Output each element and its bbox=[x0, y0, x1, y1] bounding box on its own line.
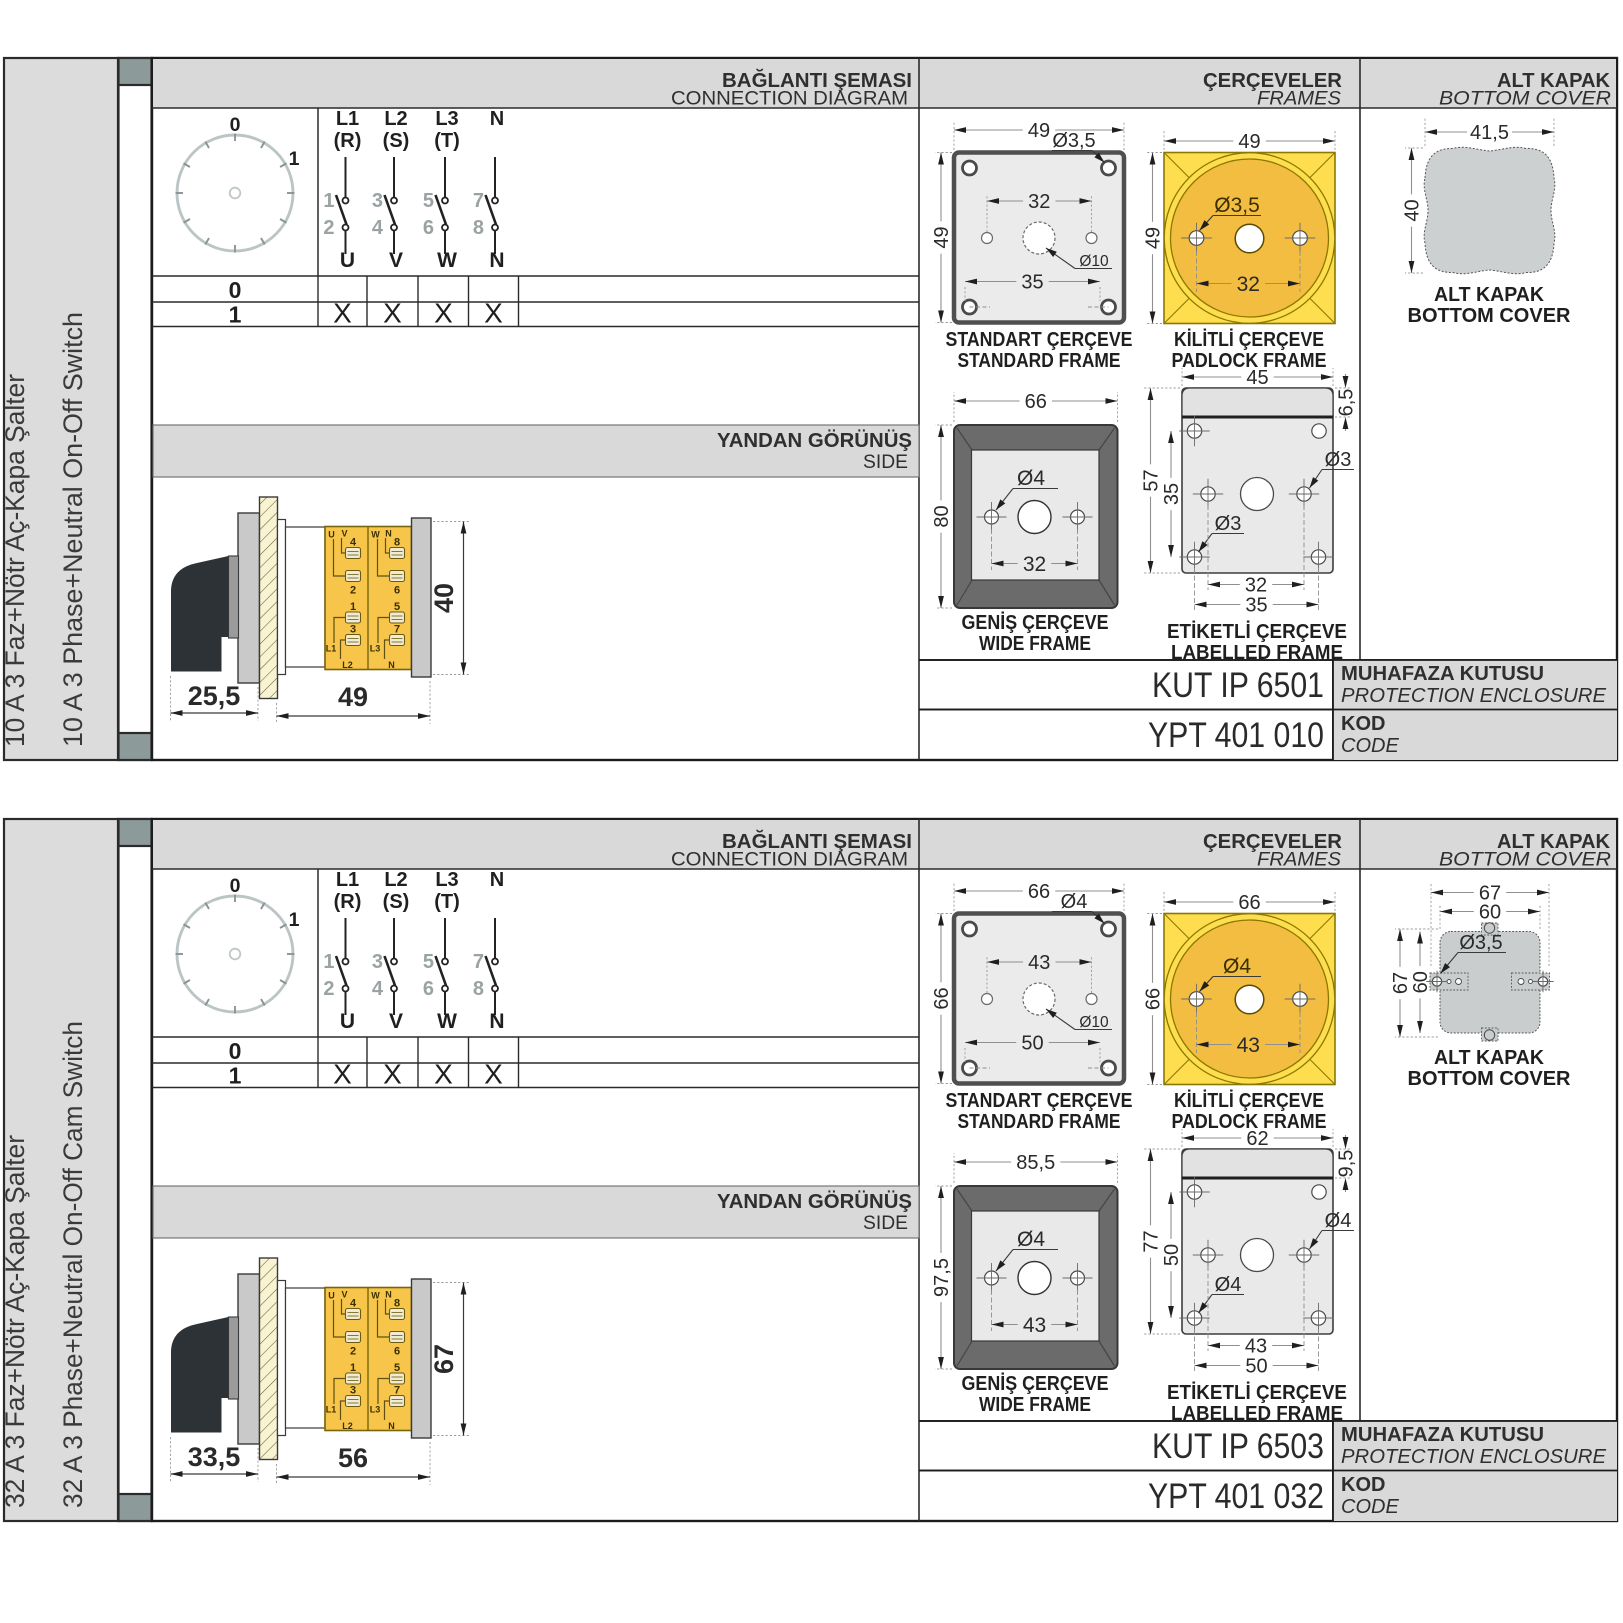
svg-text:7: 7 bbox=[394, 1385, 400, 1397]
svg-text:32: 32 bbox=[1028, 191, 1050, 213]
svg-text:9,5: 9,5 bbox=[1336, 1150, 1358, 1178]
svg-text:60: 60 bbox=[1479, 902, 1501, 924]
svg-text:L3: L3 bbox=[435, 108, 458, 130]
svg-text:KİLİTLİ ÇERÇEVE: KİLİTLİ ÇERÇEVE bbox=[1174, 1089, 1324, 1112]
svg-text:L2: L2 bbox=[384, 108, 407, 130]
svg-text:10 A 3 Phase+Neutral On-Off Sw: 10 A 3 Phase+Neutral On-Off Switch bbox=[58, 312, 88, 747]
svg-text:35: 35 bbox=[1161, 483, 1183, 505]
svg-text:Ø10: Ø10 bbox=[1079, 1014, 1109, 1031]
svg-text:Ø4: Ø4 bbox=[1061, 891, 1088, 913]
svg-text:W: W bbox=[437, 249, 457, 272]
svg-text:32 A 3 Faz+Nötr Aç-Kapa Şalter: 32 A 3 Faz+Nötr Aç-Kapa Şalter bbox=[0, 1135, 30, 1508]
svg-text:KUT IP 6503: KUT IP 6503 bbox=[1152, 1427, 1324, 1466]
svg-text:4: 4 bbox=[372, 217, 384, 239]
svg-text:33,5: 33,5 bbox=[188, 1442, 241, 1472]
svg-text:STANDART ÇERÇEVE: STANDART ÇERÇEVE bbox=[946, 329, 1133, 351]
svg-text:PROTECTION ENCLOSURE: PROTECTION ENCLOSURE bbox=[1341, 685, 1607, 707]
svg-text:4: 4 bbox=[350, 537, 357, 549]
svg-text:Ø3,5: Ø3,5 bbox=[1052, 130, 1095, 152]
svg-text:0: 0 bbox=[230, 114, 241, 136]
svg-text:PROTECTION ENCLOSURE: PROTECTION ENCLOSURE bbox=[1341, 1446, 1607, 1468]
svg-text:CODE: CODE bbox=[1341, 735, 1399, 757]
svg-text:SIDE: SIDE bbox=[863, 1213, 908, 1234]
svg-text:2: 2 bbox=[323, 217, 334, 239]
svg-text:5: 5 bbox=[423, 190, 434, 212]
svg-text:3: 3 bbox=[350, 1385, 356, 1397]
svg-text:Ø4: Ø4 bbox=[1215, 1274, 1242, 1296]
svg-text:(R): (R) bbox=[334, 891, 362, 913]
svg-text:W: W bbox=[437, 1010, 457, 1033]
svg-text:N: N bbox=[489, 249, 504, 272]
svg-text:V: V bbox=[389, 1010, 403, 1033]
svg-text:YPT 401 010: YPT 401 010 bbox=[1148, 716, 1324, 755]
svg-text:(R): (R) bbox=[334, 130, 362, 152]
svg-text:2: 2 bbox=[350, 585, 356, 597]
svg-text:YPT 401 032: YPT 401 032 bbox=[1148, 1477, 1324, 1516]
svg-text:40: 40 bbox=[429, 583, 459, 613]
svg-text:CONNECTION DIAGRAM: CONNECTION DIAGRAM bbox=[671, 850, 908, 871]
svg-text:BOTTOM COVER: BOTTOM COVER bbox=[1408, 305, 1572, 327]
svg-text:1: 1 bbox=[289, 909, 300, 931]
svg-text:KOD: KOD bbox=[1341, 713, 1385, 735]
svg-text:ETİKETLİ ÇERÇEVE: ETİKETLİ ÇERÇEVE bbox=[1167, 620, 1347, 643]
svg-text:KİLİTLİ ÇERÇEVE: KİLİTLİ ÇERÇEVE bbox=[1174, 328, 1324, 351]
svg-text:BOTTOM COVER: BOTTOM COVER bbox=[1439, 850, 1611, 871]
svg-text:32: 32 bbox=[1237, 273, 1260, 296]
svg-text:57: 57 bbox=[1141, 469, 1163, 491]
svg-text:56: 56 bbox=[338, 1443, 368, 1473]
svg-text:97,5: 97,5 bbox=[931, 1258, 953, 1297]
svg-text:GENİŞ ÇERÇEVE: GENİŞ ÇERÇEVE bbox=[962, 611, 1109, 634]
svg-text:66: 66 bbox=[1143, 988, 1165, 1010]
svg-text:STANDARD FRAME: STANDARD FRAME bbox=[958, 1111, 1121, 1133]
svg-text:V: V bbox=[389, 249, 403, 272]
svg-text:Ø3: Ø3 bbox=[1325, 449, 1352, 471]
svg-text:W: W bbox=[371, 530, 380, 540]
svg-text:50: 50 bbox=[1245, 1356, 1267, 1378]
svg-text:5: 5 bbox=[394, 601, 400, 613]
svg-text:YANDAN GÖRÜNÜŞ: YANDAN GÖRÜNÜŞ bbox=[717, 429, 912, 452]
svg-text:7: 7 bbox=[473, 951, 484, 973]
svg-text:Ø3: Ø3 bbox=[1215, 513, 1242, 535]
svg-text:U: U bbox=[340, 1010, 355, 1033]
svg-text:8: 8 bbox=[394, 1298, 400, 1310]
svg-text:Ø4: Ø4 bbox=[1017, 467, 1045, 490]
svg-text:6: 6 bbox=[394, 585, 400, 597]
svg-text:CODE: CODE bbox=[1341, 1496, 1399, 1518]
svg-text:ALT KAPAK: ALT KAPAK bbox=[1434, 1047, 1545, 1069]
svg-text:0: 0 bbox=[229, 277, 242, 303]
svg-text:8: 8 bbox=[473, 978, 484, 1000]
svg-text:FRAMES: FRAMES bbox=[1257, 850, 1341, 871]
svg-text:62: 62 bbox=[1246, 1128, 1268, 1150]
svg-text:(S): (S) bbox=[383, 891, 410, 913]
svg-text:1: 1 bbox=[350, 1362, 356, 1374]
svg-text:1: 1 bbox=[350, 601, 356, 613]
svg-text:MUHAFAZA KUTUSU: MUHAFAZA KUTUSU bbox=[1341, 1424, 1544, 1446]
svg-text:6,5: 6,5 bbox=[1336, 389, 1358, 417]
svg-text:BOTTOM COVER: BOTTOM COVER bbox=[1408, 1068, 1572, 1090]
svg-text:N: N bbox=[385, 529, 392, 539]
svg-text:W: W bbox=[371, 1291, 380, 1301]
svg-text:X: X bbox=[434, 1059, 453, 1090]
svg-text:67: 67 bbox=[429, 1344, 459, 1374]
svg-text:KUT IP 6501: KUT IP 6501 bbox=[1152, 666, 1324, 705]
svg-text:ALT KAPAK: ALT KAPAK bbox=[1434, 284, 1545, 306]
svg-text:49: 49 bbox=[1143, 227, 1165, 249]
svg-text:10 A 3 Faz+Nötr Aç-Kapa Şalter: 10 A 3 Faz+Nötr Aç-Kapa Şalter bbox=[0, 374, 30, 747]
svg-text:V: V bbox=[341, 529, 347, 539]
svg-text:L1: L1 bbox=[336, 869, 359, 891]
svg-text:L1: L1 bbox=[326, 644, 337, 654]
svg-text:FRAMES: FRAMES bbox=[1257, 89, 1341, 110]
svg-text:32 A 3 Phase+Neutral On-Off Ca: 32 A 3 Phase+Neutral On-Off Cam Switch bbox=[58, 1021, 88, 1508]
svg-text:49: 49 bbox=[338, 682, 368, 712]
svg-text:X: X bbox=[434, 298, 453, 329]
svg-text:43: 43 bbox=[1028, 952, 1050, 974]
svg-text:0: 0 bbox=[230, 875, 241, 897]
svg-text:X: X bbox=[484, 298, 503, 329]
svg-text:4: 4 bbox=[372, 978, 384, 1000]
svg-text:49: 49 bbox=[1028, 120, 1050, 142]
svg-text:STANDARD FRAME: STANDARD FRAME bbox=[958, 350, 1121, 372]
svg-text:MUHAFAZA KUTUSU: MUHAFAZA KUTUSU bbox=[1341, 663, 1544, 685]
svg-text:49: 49 bbox=[1238, 131, 1260, 153]
svg-text:L1: L1 bbox=[336, 108, 359, 130]
svg-text:(T): (T) bbox=[434, 130, 460, 152]
svg-text:X: X bbox=[383, 298, 402, 329]
svg-text:8: 8 bbox=[473, 217, 484, 239]
svg-text:X: X bbox=[333, 1059, 352, 1090]
svg-text:2: 2 bbox=[350, 1346, 356, 1358]
svg-text:5: 5 bbox=[394, 1362, 400, 1374]
svg-text:3: 3 bbox=[372, 190, 383, 212]
svg-text:80: 80 bbox=[931, 505, 953, 527]
svg-text:7: 7 bbox=[394, 624, 400, 636]
svg-text:45: 45 bbox=[1246, 367, 1268, 389]
svg-text:N: N bbox=[489, 1010, 504, 1033]
svg-text:49: 49 bbox=[931, 226, 953, 248]
svg-text:40: 40 bbox=[1402, 199, 1424, 221]
svg-text:32: 32 bbox=[1245, 575, 1267, 597]
svg-text:Ø10: Ø10 bbox=[1079, 253, 1109, 270]
svg-text:SIDE: SIDE bbox=[863, 452, 908, 473]
svg-text:L2: L2 bbox=[384, 869, 407, 891]
svg-text:Ø4: Ø4 bbox=[1223, 955, 1251, 978]
svg-text:7: 7 bbox=[473, 190, 484, 212]
svg-text:66: 66 bbox=[1028, 881, 1050, 903]
svg-text:60: 60 bbox=[1410, 971, 1432, 993]
svg-text:50: 50 bbox=[1161, 1244, 1183, 1266]
svg-text:1: 1 bbox=[229, 302, 242, 328]
svg-text:1: 1 bbox=[323, 951, 334, 973]
svg-text:X: X bbox=[383, 1059, 402, 1090]
svg-text:67: 67 bbox=[1390, 972, 1412, 994]
svg-text:N: N bbox=[490, 108, 504, 130]
svg-text:41,5: 41,5 bbox=[1470, 122, 1509, 144]
svg-text:Ø4: Ø4 bbox=[1325, 1210, 1352, 1232]
svg-text:3: 3 bbox=[372, 951, 383, 973]
svg-text:KOD: KOD bbox=[1341, 1474, 1385, 1496]
svg-text:43: 43 bbox=[1237, 1034, 1260, 1057]
svg-text:43: 43 bbox=[1023, 1314, 1046, 1337]
svg-text:ETİKETLİ ÇERÇEVE: ETİKETLİ ÇERÇEVE bbox=[1167, 1381, 1347, 1404]
svg-text:V: V bbox=[341, 1290, 347, 1300]
svg-text:66: 66 bbox=[1238, 892, 1260, 914]
svg-text:3: 3 bbox=[350, 624, 356, 636]
svg-text:5: 5 bbox=[423, 951, 434, 973]
svg-text:GENİŞ ÇERÇEVE: GENİŞ ÇERÇEVE bbox=[962, 1372, 1109, 1395]
svg-text:Ø3,5: Ø3,5 bbox=[1459, 932, 1502, 954]
svg-text:1: 1 bbox=[323, 190, 334, 212]
svg-text:66: 66 bbox=[931, 987, 953, 1009]
svg-text:L3: L3 bbox=[370, 1405, 381, 1415]
svg-text:N: N bbox=[385, 1290, 392, 1300]
svg-text:L2: L2 bbox=[342, 1421, 353, 1431]
svg-text:77: 77 bbox=[1141, 1230, 1163, 1252]
svg-text:(T): (T) bbox=[434, 891, 460, 913]
svg-text:N: N bbox=[388, 1421, 395, 1431]
svg-text:32: 32 bbox=[1023, 553, 1046, 576]
svg-text:U: U bbox=[328, 530, 335, 540]
svg-text:L3: L3 bbox=[370, 644, 381, 654]
svg-text:STANDART ÇERÇEVE: STANDART ÇERÇEVE bbox=[946, 1090, 1133, 1112]
svg-text:50: 50 bbox=[1021, 1033, 1043, 1055]
svg-text:N: N bbox=[490, 869, 504, 891]
svg-text:L1: L1 bbox=[326, 1405, 337, 1415]
svg-text:6: 6 bbox=[394, 1346, 400, 1358]
svg-text:2: 2 bbox=[323, 978, 334, 1000]
svg-text:X: X bbox=[484, 1059, 503, 1090]
svg-text:66: 66 bbox=[1025, 391, 1047, 413]
svg-text:8: 8 bbox=[394, 537, 400, 549]
svg-text:WIDE FRAME: WIDE FRAME bbox=[979, 1394, 1091, 1416]
svg-text:WIDE FRAME: WIDE FRAME bbox=[979, 633, 1091, 655]
svg-text:BOTTOM COVER: BOTTOM COVER bbox=[1439, 89, 1611, 110]
svg-text:N: N bbox=[388, 660, 395, 670]
svg-text:6: 6 bbox=[423, 978, 434, 1000]
svg-text:YANDAN GÖRÜNÜŞ: YANDAN GÖRÜNÜŞ bbox=[717, 1190, 912, 1213]
svg-text:6: 6 bbox=[423, 217, 434, 239]
svg-text:Ø4: Ø4 bbox=[1017, 1228, 1045, 1251]
svg-text:1: 1 bbox=[229, 1063, 242, 1089]
svg-text:43: 43 bbox=[1245, 1336, 1267, 1358]
svg-text:L3: L3 bbox=[435, 869, 458, 891]
svg-text:CONNECTION DIAGRAM: CONNECTION DIAGRAM bbox=[671, 89, 908, 110]
svg-text:Ø3,5: Ø3,5 bbox=[1214, 194, 1260, 217]
svg-text:U: U bbox=[328, 1291, 335, 1301]
svg-text:(S): (S) bbox=[383, 130, 410, 152]
svg-text:U: U bbox=[340, 249, 355, 272]
svg-text:35: 35 bbox=[1245, 595, 1267, 617]
svg-text:85,5: 85,5 bbox=[1016, 1152, 1055, 1174]
svg-text:35: 35 bbox=[1021, 272, 1043, 294]
svg-text:0: 0 bbox=[229, 1038, 242, 1064]
svg-text:4: 4 bbox=[350, 1298, 357, 1310]
svg-text:25,5: 25,5 bbox=[188, 681, 241, 711]
svg-text:L2: L2 bbox=[342, 660, 353, 670]
svg-text:1: 1 bbox=[289, 148, 300, 170]
svg-text:X: X bbox=[333, 298, 352, 329]
